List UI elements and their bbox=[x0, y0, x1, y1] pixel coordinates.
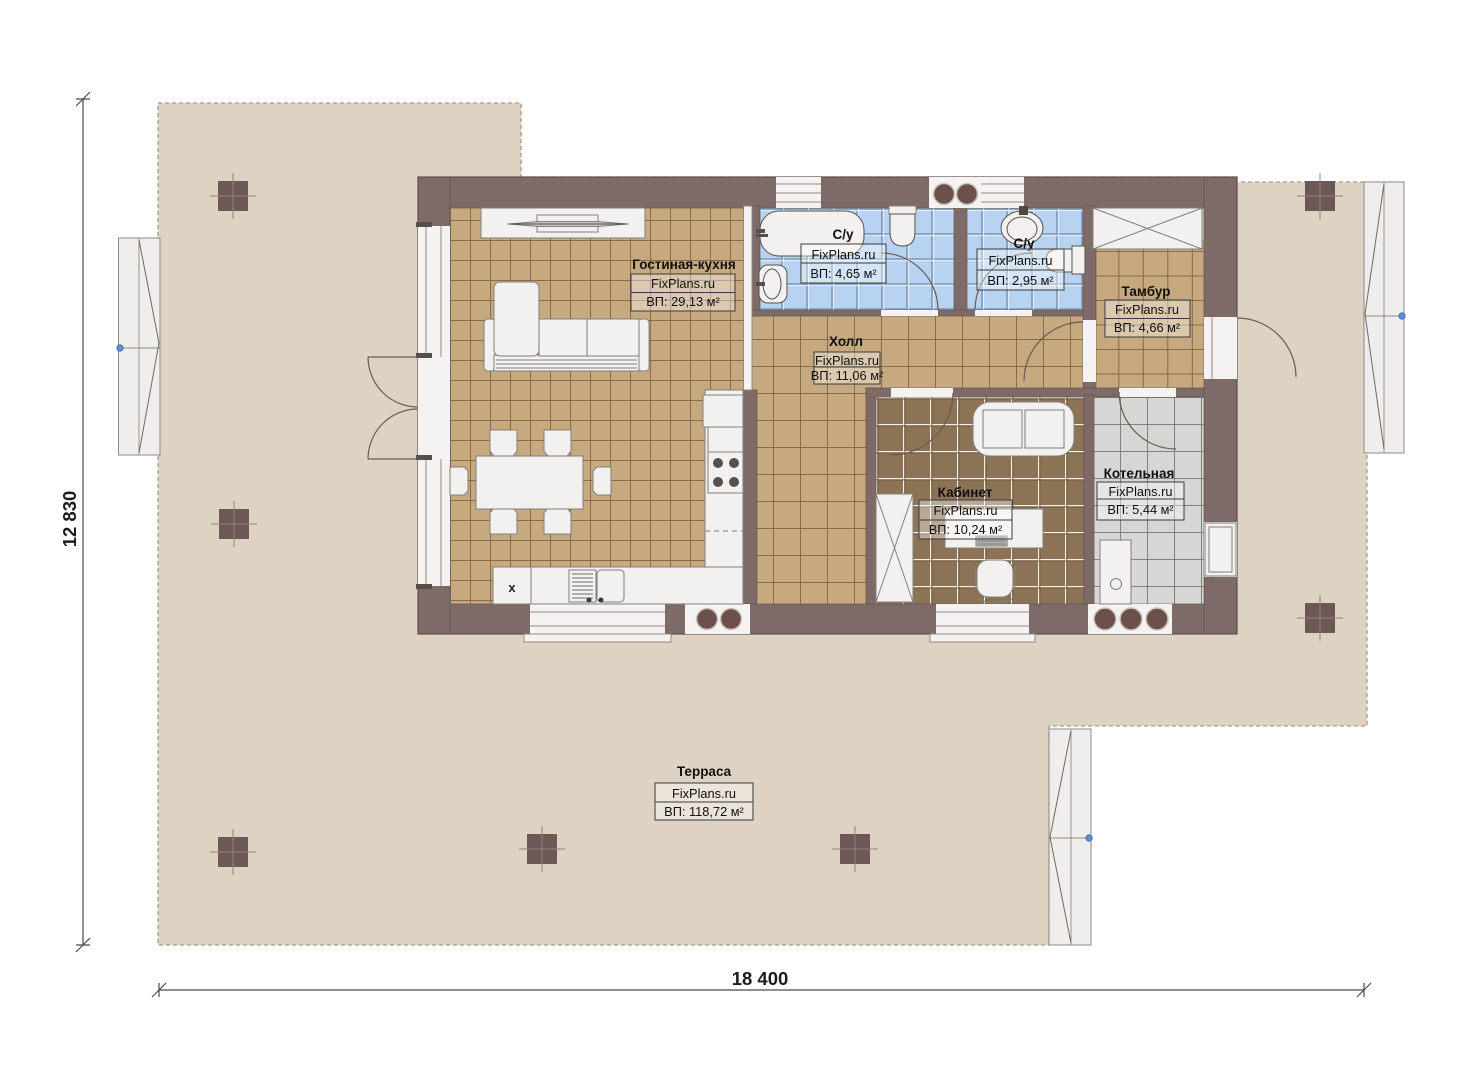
svg-text:12 830: 12 830 bbox=[59, 491, 80, 548]
svg-text:FixPlans.ru: FixPlans.ru bbox=[815, 353, 879, 368]
svg-text:FixPlans.ru: FixPlans.ru bbox=[1108, 484, 1172, 499]
svg-text:Гостиная-кухня: Гостиная-кухня bbox=[632, 257, 735, 272]
svg-text:FixPlans.ru: FixPlans.ru bbox=[672, 786, 736, 801]
svg-text:FixPlans.ru: FixPlans.ru bbox=[988, 253, 1052, 268]
svg-text:ВП: 5,44 м²: ВП: 5,44 м² bbox=[1107, 502, 1174, 517]
svg-text:Кабинет: Кабинет bbox=[938, 485, 993, 500]
svg-text:x: x bbox=[508, 580, 516, 595]
svg-text:ВП: 4,65 м²: ВП: 4,65 м² bbox=[810, 266, 877, 281]
svg-text:ВП: 2,95 м²: ВП: 2,95 м² bbox=[987, 273, 1054, 288]
svg-text:ВП: 118,72 м²: ВП: 118,72 м² bbox=[664, 804, 744, 819]
svg-text:Котельная: Котельная bbox=[1104, 466, 1175, 481]
svg-text:FixPlans.ru: FixPlans.ru bbox=[1115, 302, 1179, 317]
svg-text:ВП: 29,13 м²: ВП: 29,13 м² bbox=[646, 294, 720, 309]
svg-text:С/у: С/у bbox=[832, 227, 854, 242]
svg-text:FixPlans.ru: FixPlans.ru bbox=[651, 276, 715, 291]
svg-text:ВП: 4,66 м²: ВП: 4,66 м² bbox=[1114, 320, 1181, 335]
svg-text:ВП: 11,06 м²: ВП: 11,06 м² bbox=[811, 368, 884, 383]
svg-text:FixPlans.ru: FixPlans.ru bbox=[933, 503, 997, 518]
svg-text:FixPlans.ru: FixPlans.ru bbox=[811, 247, 875, 262]
svg-text:18 400: 18 400 bbox=[732, 968, 789, 989]
svg-text:ВП: 10,24 м²: ВП: 10,24 м² bbox=[929, 522, 1003, 537]
svg-text:Тамбур: Тамбур bbox=[1122, 284, 1171, 299]
svg-text:Терраса: Терраса bbox=[677, 764, 732, 779]
svg-text:Холл: Холл bbox=[829, 334, 863, 349]
